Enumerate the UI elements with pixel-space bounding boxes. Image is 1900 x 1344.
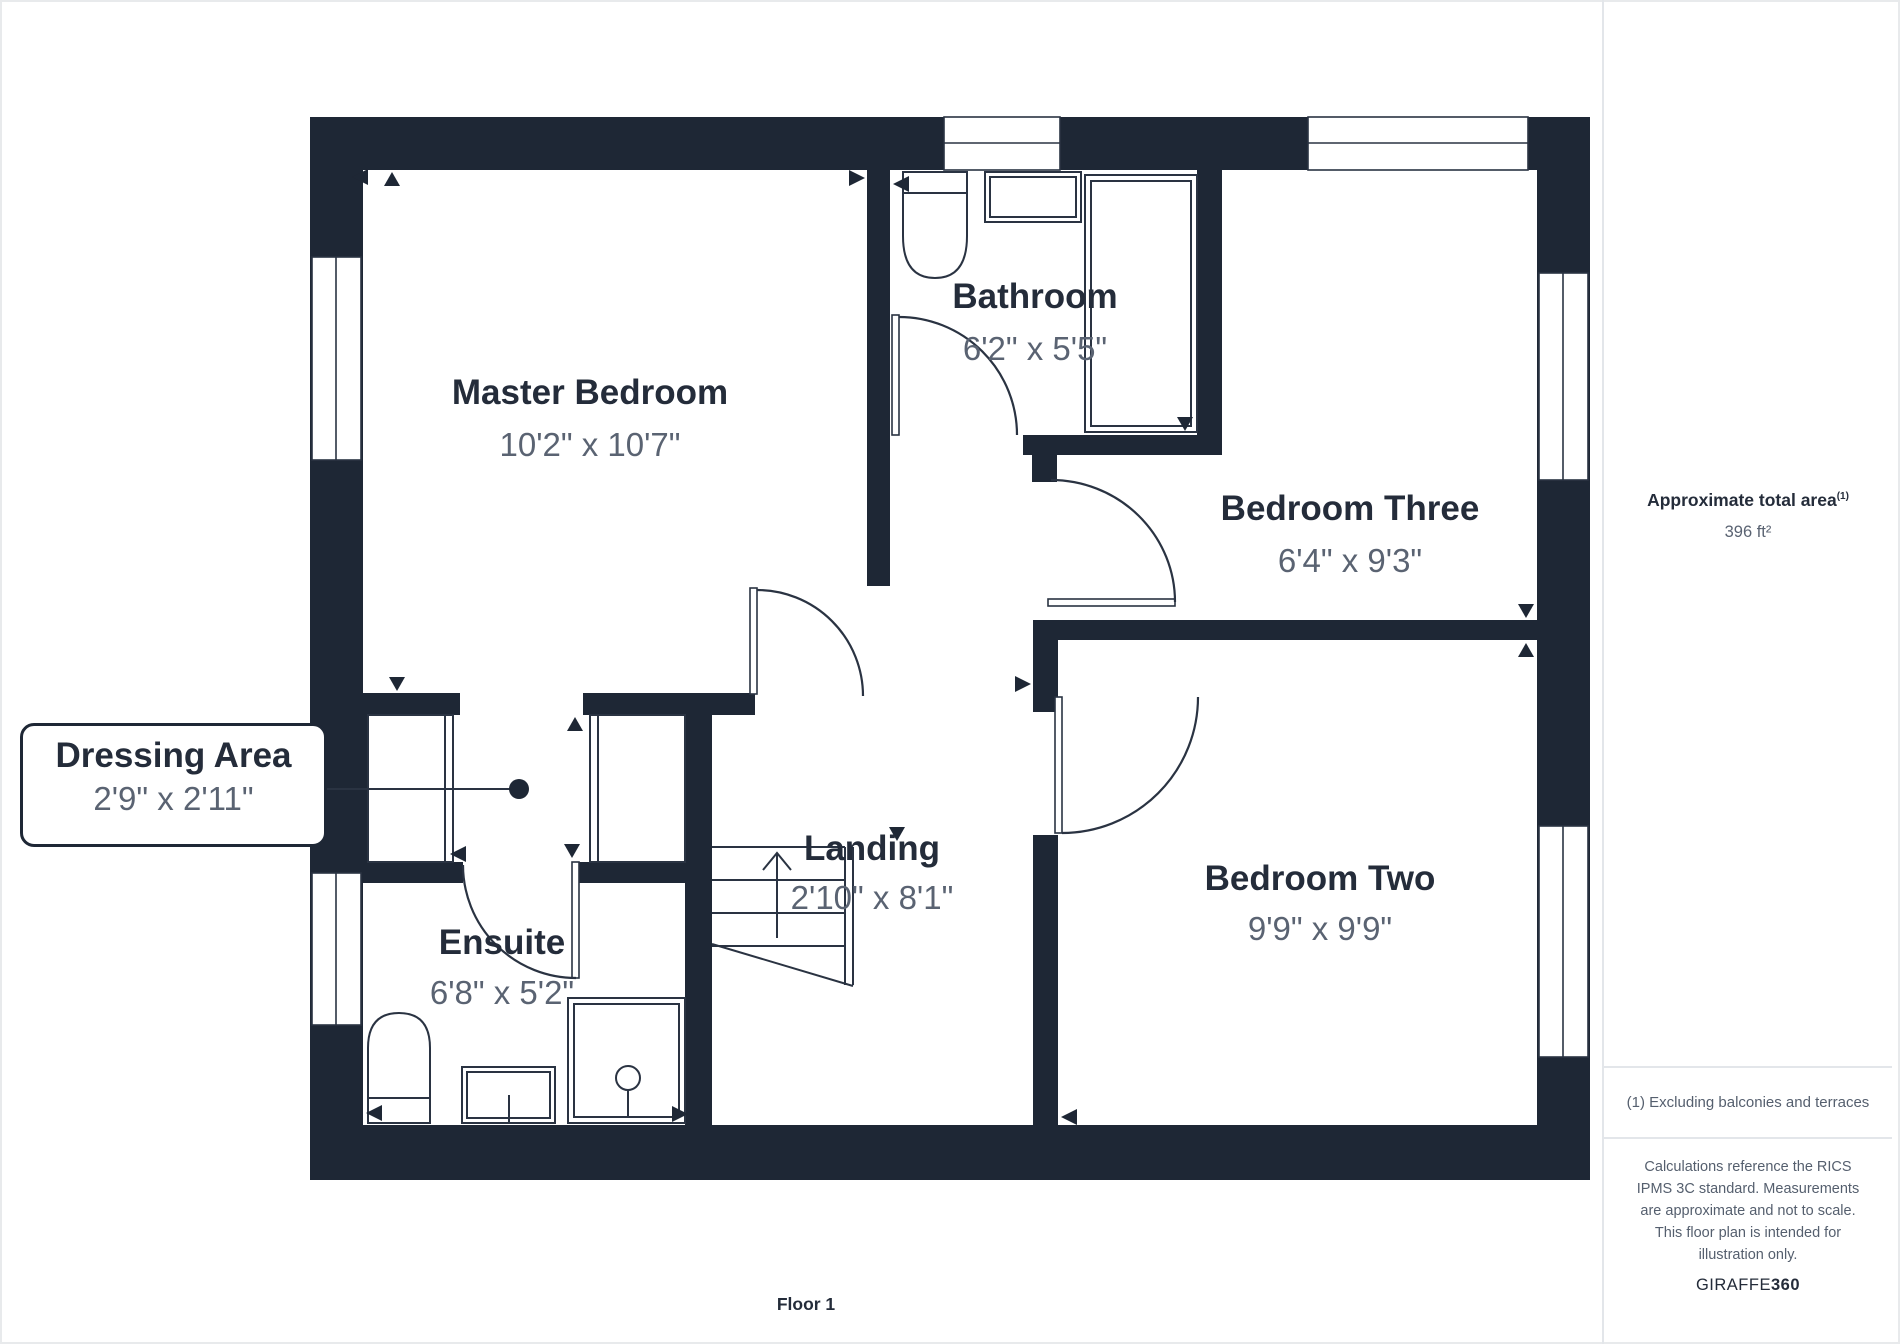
room-dims-bathroom: 6'2" x 5'5" [963,330,1107,367]
total-area-block: Approximate total area(1) 396 ft² [1604,490,1892,542]
sidebar: Approximate total area(1) 396 ft² (1) Ex… [1602,0,1892,1344]
floor-label: Floor 1 [706,1294,906,1315]
room-label-landing: Landing [804,829,940,868]
room-label-ensuite: Ensuite [439,923,565,962]
ensuite-fixtures [368,998,685,1123]
brand-suffix: 360 [1771,1276,1800,1294]
total-area-footnote-marker: (1) [1837,491,1849,502]
room-dims-ensuite: 6'8" x 5'2" [430,974,574,1011]
toilet-icon [368,1013,430,1098]
disclaimer: Calculations reference the RICS IPMS 3C … [1604,1156,1892,1266]
floorplan-page: Master Bedroom 10'2" x 10'7" Bathroom 6'… [0,0,1900,1344]
door-leaf-bedroom-two [1055,697,1062,833]
dressing-area-title: Dressing Area [23,736,324,776]
brand-name: GIRAFFE [1696,1276,1771,1294]
walls [310,117,1590,1180]
door-leaf-bedroom-three [1048,599,1175,606]
room-dims-bedroom-three: 6'4" x 9'3" [1278,542,1422,579]
door-leaf-bathroom [892,315,899,435]
total-area-title: Approximate total area(1) [1604,490,1892,511]
room-label-master-bedroom: Master Bedroom [452,373,728,412]
dressing-area-dims: 2'9" x 2'11" [23,780,324,818]
room-label-bedroom-two: Bedroom Two [1205,859,1436,898]
brand-logo: GIRAFFE360 [1604,1276,1892,1295]
door-leaf-master [750,588,757,694]
door-arc-bedroom-two [1062,697,1198,833]
room-dims-landing: 2'10" x 8'1" [791,879,954,916]
room-dims-master-bedroom: 10'2" x 10'7" [500,426,681,463]
door-arc-bedroom-three [1051,480,1175,602]
closet-right [590,715,685,862]
total-area-value: 396 ft² [1604,523,1892,542]
room-label-bathroom: Bathroom [952,277,1117,316]
room-dims-bedroom-two: 9'9" x 9'9" [1248,910,1392,947]
door-arc-master [757,590,863,696]
total-area-title-text: Approximate total area [1647,490,1837,510]
dressing-area-callout: Dressing Area 2'9" x 2'11" [20,723,327,847]
footnote: (1) Excluding balconies and terraces [1604,1066,1892,1139]
door-leaf-ensuite [572,862,579,978]
leader-dot [509,779,529,799]
room-label-bedroom-three: Bedroom Three [1221,489,1480,528]
room-labels: Master Bedroom 10'2" x 10'7" Bathroom 6'… [430,277,1479,1011]
toilet-icon [903,172,967,193]
